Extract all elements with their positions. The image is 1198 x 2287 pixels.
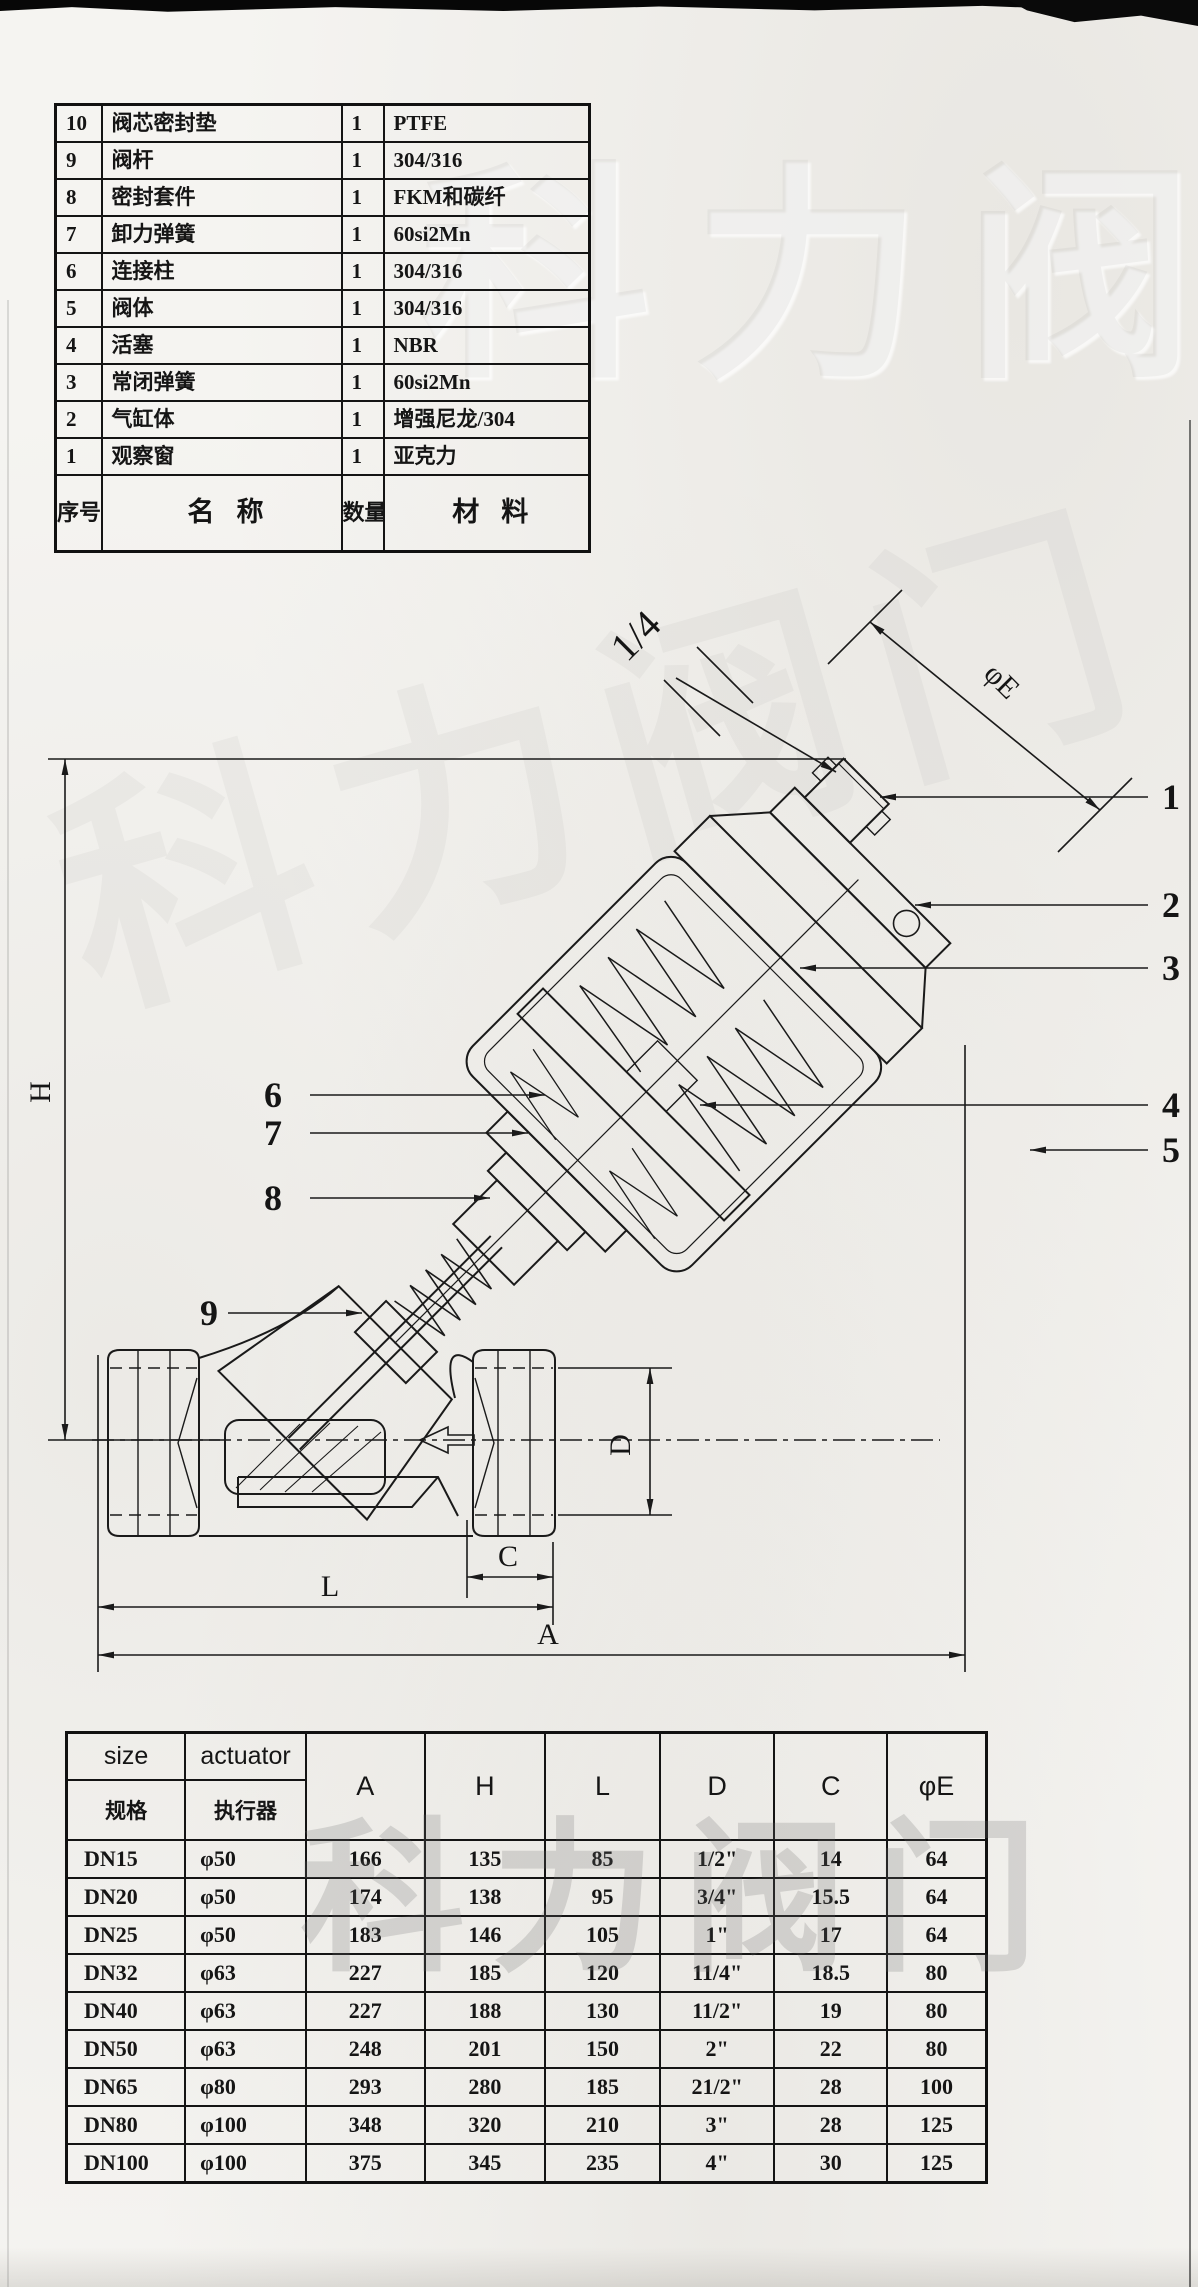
header-cell: 序号 — [56, 475, 102, 552]
cell: 185 — [545, 2068, 660, 2106]
cell: 8 — [56, 179, 102, 216]
cell: DN15 — [67, 1840, 186, 1878]
cell: 201 — [425, 2030, 546, 2068]
cell: 4" — [660, 2144, 775, 2182]
cell: DN20 — [67, 1878, 186, 1916]
cell: 227 — [306, 1992, 425, 2030]
cell: 22 — [774, 2030, 887, 2068]
cell: 100 — [887, 2068, 986, 2106]
cell: 11/4" — [660, 1954, 775, 1992]
cell: 227 — [306, 1954, 425, 1992]
header-cell: 数量 — [342, 475, 384, 552]
cell: 293 — [306, 2068, 425, 2106]
cell: 3/4" — [660, 1878, 775, 1916]
drawing-sheet: 科力阀门 科力阀门 10 阀芯密封垫 1 PTFE 9 阀杆 1 304/316… — [0, 0, 1198, 2287]
dim-label-d: D — [604, 1434, 637, 1456]
cell: 120 — [545, 1954, 660, 1992]
cell: 138 — [425, 1878, 546, 1916]
cell: 210 — [545, 2106, 660, 2144]
cell: 304/316 — [384, 142, 590, 179]
dim-label-phi-e: φE — [977, 657, 1026, 706]
cell: 增强尼龙/304 — [384, 401, 590, 438]
right-port — [473, 1350, 555, 1536]
cell: 1 — [56, 438, 102, 475]
callout-leaders — [228, 797, 1148, 1313]
cell: DN32 — [67, 1954, 186, 1992]
scan-edge-left — [7, 300, 9, 2287]
table-row: DN20 φ50 174 138 95 3/4" 15.5 64 — [67, 1878, 987, 1916]
dim-label-air-port: 1/4 — [601, 601, 669, 669]
dim-label-a: A — [537, 1618, 559, 1651]
dimensions-table: size 规格 actuator 执行器 A H L D C φE DN15 φ… — [65, 1731, 988, 2184]
cell: NBR — [384, 327, 590, 364]
table-row: DN15 φ50 166 135 85 1/2" 14 64 — [67, 1840, 987, 1878]
cell: 125 — [887, 2144, 986, 2182]
cell: 亚克力 — [384, 438, 590, 475]
cell: 2" — [660, 2030, 775, 2068]
cell: 3" — [660, 2106, 775, 2144]
cell: 11/2" — [660, 1992, 775, 2030]
header-cell: C — [774, 1733, 887, 1841]
table-row: DN40 φ63 227 188 130 11/2" 19 80 — [67, 1992, 987, 2030]
cell: 320 — [425, 2106, 546, 2144]
cell: FKM和碳纤 — [384, 179, 590, 216]
header-size-zh: 规格 — [68, 1781, 184, 1839]
cell: 30 — [774, 2144, 887, 2182]
cell: φ63 — [185, 1992, 306, 2030]
cell: 密封套件 — [102, 179, 342, 216]
cell: 1 — [342, 290, 384, 327]
cell: 60si2Mn — [384, 216, 590, 253]
cell: φ50 — [185, 1878, 306, 1916]
cell: φ100 — [185, 2106, 306, 2144]
cell: 80 — [887, 2030, 986, 2068]
cell: DN50 — [67, 2030, 186, 2068]
dim-a — [98, 1045, 965, 1672]
header-cell-actuator: actuator 执行器 — [185, 1733, 306, 1841]
header-cell: A — [306, 1733, 425, 1841]
callout-3: 3 — [1162, 948, 1180, 988]
callout-5: 5 — [1162, 1130, 1180, 1170]
cell: 80 — [887, 1954, 986, 1992]
cell: 248 — [306, 2030, 425, 2068]
cell: DN80 — [67, 2106, 186, 2144]
cell: 1 — [342, 327, 384, 364]
cell: 146 — [425, 1916, 546, 1954]
dim-label-c: C — [498, 1540, 518, 1573]
cell: 280 — [425, 2068, 546, 2106]
cell: 15.5 — [774, 1878, 887, 1916]
cell: 1 — [342, 142, 384, 179]
table-row: DN100 φ100 375 345 235 4" 30 125 — [67, 2144, 987, 2182]
dim-label-h: H — [24, 1081, 57, 1103]
table-row: DN65 φ80 293 280 185 21/2" 28 100 — [67, 2068, 987, 2106]
cell: 1 — [342, 401, 384, 438]
cell: 185 — [425, 1954, 546, 1992]
cell: 60si2Mn — [384, 364, 590, 401]
cell: 130 — [545, 1992, 660, 2030]
callout-1: 1 — [1162, 777, 1180, 817]
cell: 125 — [887, 2106, 986, 2144]
cell: 21/2" — [660, 2068, 775, 2106]
table-row: 10 阀芯密封垫 1 PTFE — [56, 105, 590, 142]
cell: 7 — [56, 216, 102, 253]
header-actuator-en: actuator — [186, 1734, 305, 1781]
scan-shadow-bottom — [0, 2247, 1198, 2287]
cell: DN100 — [67, 2144, 186, 2182]
cell: φ100 — [185, 2144, 306, 2182]
cell: 3 — [56, 364, 102, 401]
cell: 17 — [774, 1916, 887, 1954]
cell: 气缸体 — [102, 401, 342, 438]
left-port — [108, 1350, 199, 1536]
table-row: DN50 φ63 248 201 150 2" 22 80 — [67, 2030, 987, 2068]
cell: 1 — [342, 216, 384, 253]
cell: 64 — [887, 1878, 986, 1916]
table-row: DN80 φ100 348 320 210 3" 28 125 — [67, 2106, 987, 2144]
table-row: 5 阀体 1 304/316 — [56, 290, 590, 327]
callout-4: 4 — [1162, 1085, 1180, 1125]
header-cell: H — [425, 1733, 546, 1841]
cell: 345 — [425, 2144, 546, 2182]
parts-table-header: 序号 名称 数量 材料 — [56, 475, 590, 552]
callout-6: 6 — [264, 1075, 282, 1115]
cell: 348 — [306, 2106, 425, 2144]
cell: DN65 — [67, 2068, 186, 2106]
cell: φ50 — [185, 1916, 306, 1954]
table-row: 1 观察窗 1 亚克力 — [56, 438, 590, 475]
cell: 95 — [545, 1878, 660, 1916]
cell: 1/2" — [660, 1840, 775, 1878]
header-cell: L — [545, 1733, 660, 1841]
cell: 1 — [342, 438, 384, 475]
cell: φ63 — [185, 1954, 306, 1992]
cell: 常闭弹簧 — [102, 364, 342, 401]
cell: PTFE — [384, 105, 590, 142]
callout-7: 7 — [264, 1113, 282, 1153]
cell: 304/316 — [384, 253, 590, 290]
cell: 19 — [774, 1992, 887, 2030]
table-row: 3 常闭弹簧 1 60si2Mn — [56, 364, 590, 401]
cell: φ50 — [185, 1840, 306, 1878]
cell: φ80 — [185, 2068, 306, 2106]
parts-table: 10 阀芯密封垫 1 PTFE 9 阀杆 1 304/316 8 密封套件 1 … — [54, 103, 591, 553]
table-row: 8 密封套件 1 FKM和碳纤 — [56, 179, 590, 216]
scan-edge-right — [1189, 420, 1191, 2287]
cell: 1 — [342, 253, 384, 290]
cell: 阀芯密封垫 — [102, 105, 342, 142]
table-row: 6 连接柱 1 304/316 — [56, 253, 590, 290]
cell: 观察窗 — [102, 438, 342, 475]
cell: 166 — [306, 1840, 425, 1878]
cell: 1 — [342, 179, 384, 216]
header-cell-size: size 规格 — [67, 1733, 186, 1841]
table-row: DN32 φ63 227 185 120 11/4" 18.5 80 — [67, 1954, 987, 1992]
dim-air-port — [664, 647, 836, 772]
cell: 1 — [342, 105, 384, 142]
cell: 阀杆 — [102, 142, 342, 179]
cell: 1 — [342, 364, 384, 401]
dims-table-header: size 规格 actuator 执行器 A H L D C φE — [67, 1733, 987, 1841]
cell: 235 — [545, 2144, 660, 2182]
cell: 64 — [887, 1840, 986, 1878]
cell: 4 — [56, 327, 102, 364]
cell: DN40 — [67, 1992, 186, 2030]
callout-8: 8 — [264, 1178, 282, 1218]
table-row: 9 阀杆 1 304/316 — [56, 142, 590, 179]
cell: 304/316 — [384, 290, 590, 327]
cell: 18.5 — [774, 1954, 887, 1992]
table-row: 7 卸力弹簧 1 60si2Mn — [56, 216, 590, 253]
cell: 183 — [306, 1916, 425, 1954]
cell: 9 — [56, 142, 102, 179]
header-size-en: size — [68, 1734, 184, 1781]
cell: 105 — [545, 1916, 660, 1954]
cell: 135 — [425, 1840, 546, 1878]
cell: 64 — [887, 1916, 986, 1954]
cell: 阀体 — [102, 290, 342, 327]
actuator-assembly — [183, 717, 1021, 1555]
cell: 150 — [545, 2030, 660, 2068]
cell: 2 — [56, 401, 102, 438]
dim-h — [48, 759, 846, 1440]
cell: 174 — [306, 1878, 425, 1916]
callout-9: 9 — [200, 1293, 218, 1333]
cell: 80 — [887, 1992, 986, 2030]
table-row: DN25 φ50 183 146 105 1" 17 64 — [67, 1916, 987, 1954]
header-cell: φE — [887, 1733, 986, 1841]
cell: 1" — [660, 1916, 775, 1954]
header-cell: 名称 — [102, 475, 342, 552]
cell: 28 — [774, 2106, 887, 2144]
cell: φ63 — [185, 2030, 306, 2068]
cell: 375 — [306, 2144, 425, 2182]
table-row: 4 活塞 1 NBR — [56, 327, 590, 364]
cell: 28 — [774, 2068, 887, 2106]
cell: 5 — [56, 290, 102, 327]
cell: 85 — [545, 1840, 660, 1878]
header-cell: D — [660, 1733, 775, 1841]
cell: 6 — [56, 253, 102, 290]
cell: 活塞 — [102, 327, 342, 364]
cell: 14 — [774, 1840, 887, 1878]
callout-2: 2 — [1162, 885, 1180, 925]
cell: DN25 — [67, 1916, 186, 1954]
header-actuator-zh: 执行器 — [186, 1781, 305, 1839]
cell: 188 — [425, 1992, 546, 2030]
dim-phi-e — [828, 590, 1132, 852]
cell: 10 — [56, 105, 102, 142]
cell: 卸力弹簧 — [102, 216, 342, 253]
cell: 连接柱 — [102, 253, 342, 290]
table-row: 2 气缸体 1 增强尼龙/304 — [56, 401, 590, 438]
header-cell: 材料 — [384, 475, 590, 552]
valve-body — [92, 1286, 940, 1536]
dim-label-l: L — [321, 1570, 339, 1603]
